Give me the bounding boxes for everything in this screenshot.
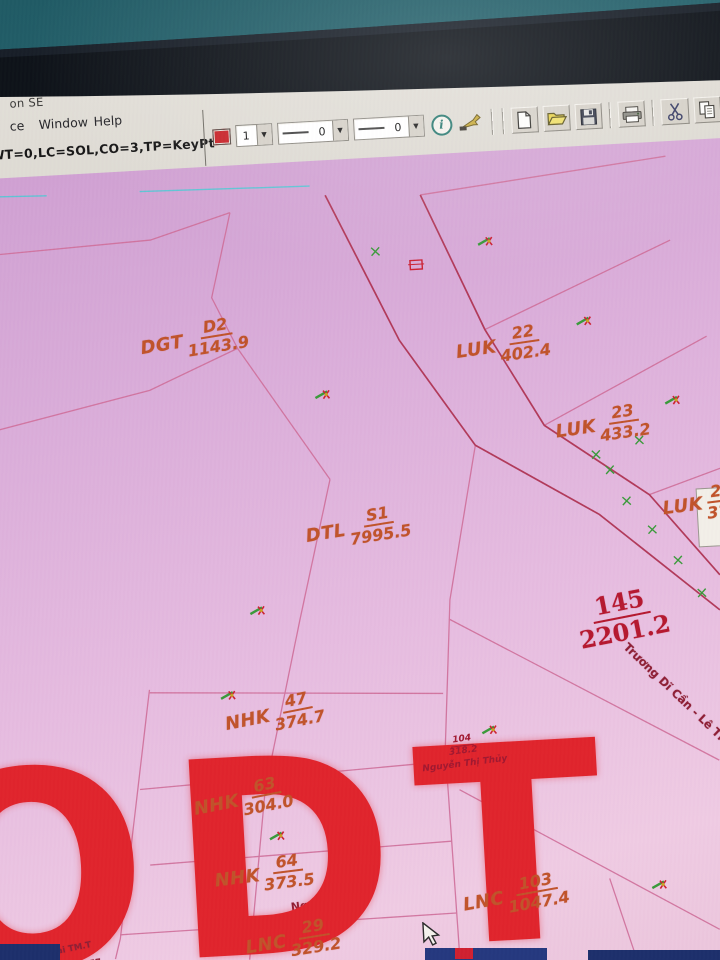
parcel-code: LNC — [244, 931, 288, 958]
taskbar-red-button — [455, 948, 473, 959]
road-lines — [325, 174, 720, 630]
parcel-code: NHK — [213, 865, 261, 892]
parcel-code: NHK — [192, 790, 241, 819]
parcel-code: LUK — [661, 493, 704, 519]
parcel-code: DGT — [139, 331, 185, 359]
monitor-bezel — [0, 0, 720, 220]
parcel-code: LUK — [455, 336, 498, 363]
parcel-code: NHK — [223, 705, 272, 734]
parcel-code: LUK — [554, 416, 597, 443]
parcel-area: 379 — [706, 500, 720, 522]
parcel-id: 24 — [705, 480, 720, 504]
road-culvert-symbol — [408, 260, 424, 270]
tree-symbols — [371, 230, 706, 614]
monitor-photo: on SE ce Window Help EM,WT=0,LC=SOL,CO=3… — [0, 0, 720, 960]
parcel-code: DTL — [304, 520, 347, 547]
taskbar-fragment — [425, 948, 547, 960]
map-viewport[interactable]: Ngọc Thạnh ODT Trương Dĩ Cần - Lê Thị B … — [0, 136, 720, 960]
taskbar-fragment — [588, 950, 720, 960]
taskbar-fragment — [0, 944, 60, 960]
parcel-area: 318.2 — [449, 744, 479, 758]
parcel-code: LNC — [462, 887, 506, 915]
mouse-cursor-icon — [420, 921, 443, 948]
